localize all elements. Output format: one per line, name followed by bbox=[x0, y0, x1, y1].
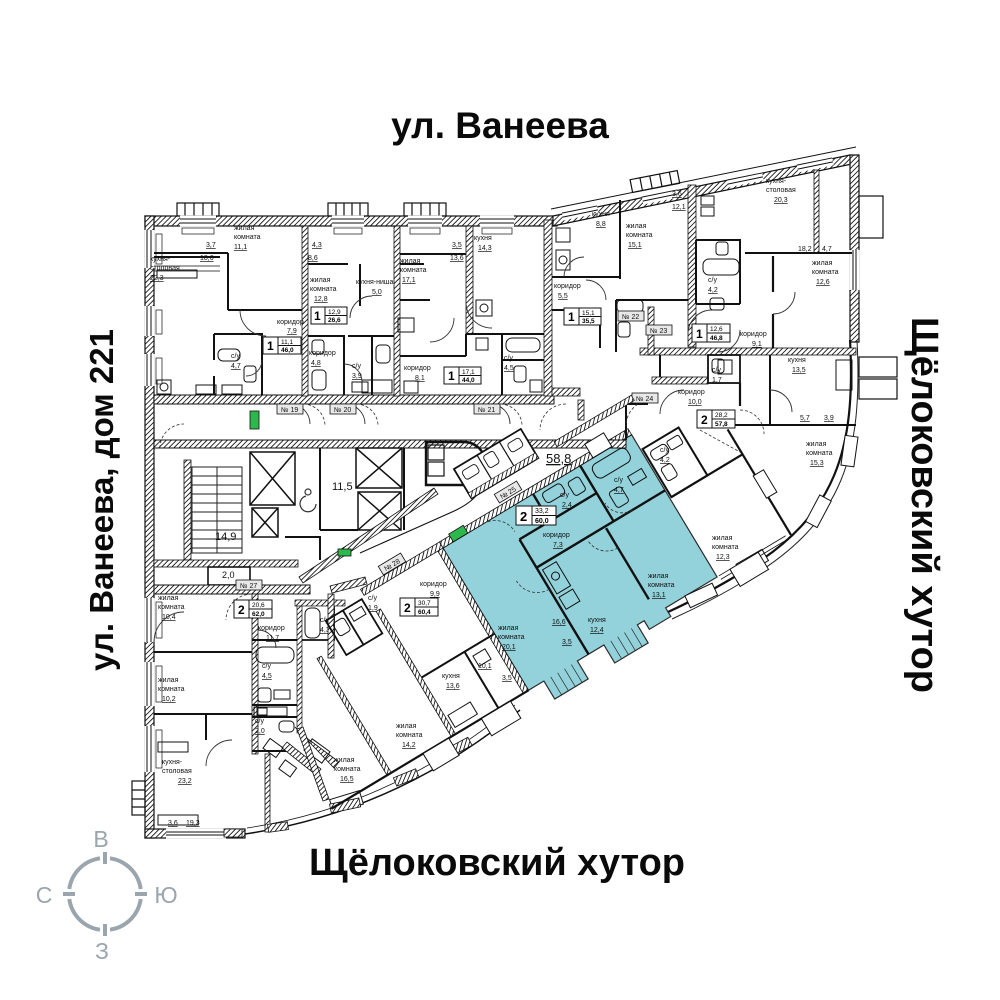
svg-text:с/у: с/у bbox=[352, 363, 361, 370]
svg-text:жилая: жилая bbox=[310, 277, 331, 284]
svg-text:16,5: 16,5 bbox=[340, 776, 354, 783]
svg-text:3,5: 3,5 bbox=[502, 675, 512, 682]
svg-text:12,3: 12,3 bbox=[716, 554, 730, 561]
svg-text:жилая: жилая bbox=[626, 223, 647, 230]
svg-text:с/у: с/у bbox=[614, 477, 623, 484]
svg-text:19,3: 19,3 bbox=[186, 820, 200, 827]
svg-text:17,1: 17,1 bbox=[402, 277, 416, 284]
svg-text:комната: комната bbox=[158, 604, 185, 611]
svg-text:коридор: коридор bbox=[309, 350, 336, 357]
svg-text:13,6: 13,6 bbox=[450, 255, 464, 262]
svg-text:5,5: 5,5 bbox=[558, 293, 568, 300]
svg-text:35,5: 35,5 bbox=[582, 318, 595, 325]
svg-text:№ 20: № 20 bbox=[334, 407, 351, 414]
svg-text:3,7: 3,7 bbox=[206, 242, 216, 249]
svg-text:жилая: жилая bbox=[806, 441, 827, 448]
svg-text:12,1: 12,1 bbox=[672, 204, 686, 211]
svg-text:3,6: 3,6 bbox=[672, 191, 682, 198]
svg-text:ул. Ванеева, дом 221: ул. Ванеева, дом 221 bbox=[83, 329, 120, 671]
svg-text:14,2: 14,2 bbox=[402, 742, 416, 749]
svg-text:Щёлоковский хутор: Щёлоковский хутор bbox=[903, 317, 945, 693]
svg-text:кухня-: кухня- bbox=[162, 759, 183, 766]
svg-text:№ 21: № 21 bbox=[478, 407, 495, 414]
svg-text:2,0: 2,0 bbox=[222, 570, 235, 580]
svg-text:16,6: 16,6 bbox=[552, 619, 566, 626]
svg-text:9,1: 9,1 bbox=[752, 341, 762, 348]
svg-text:5,7: 5,7 bbox=[800, 415, 810, 422]
svg-text:20,3: 20,3 bbox=[774, 197, 788, 204]
svg-text:жилая: жилая bbox=[234, 225, 255, 232]
svg-text:13,5: 13,5 bbox=[792, 367, 806, 374]
svg-text:3,9: 3,9 bbox=[824, 415, 834, 422]
svg-text:12,9: 12,9 bbox=[328, 309, 341, 316]
svg-text:жилая: жилая bbox=[648, 573, 669, 580]
svg-text:кухня-: кухня- bbox=[150, 256, 171, 263]
svg-text:жилая: жилая bbox=[158, 677, 179, 684]
svg-text:с/у: с/у bbox=[368, 595, 377, 602]
svg-text:13,6: 13,6 bbox=[446, 683, 460, 690]
svg-text:1: 1 bbox=[267, 339, 274, 353]
svg-text:4,5: 4,5 bbox=[262, 673, 272, 680]
svg-text:3,5: 3,5 bbox=[562, 639, 572, 646]
svg-text:с/у: с/у bbox=[255, 718, 264, 725]
svg-text:кухня: кухня bbox=[474, 235, 492, 242]
svg-text:кухня: кухня bbox=[592, 211, 610, 218]
svg-text:1: 1 bbox=[696, 327, 703, 341]
svg-text:3,6: 3,6 bbox=[168, 820, 178, 827]
svg-text:с/у: с/у bbox=[712, 367, 721, 374]
svg-text:комната: комната bbox=[812, 269, 839, 276]
svg-text:с/у: с/у bbox=[708, 277, 717, 284]
svg-text:7,9: 7,9 bbox=[287, 328, 297, 335]
svg-text:57,8: 57,8 bbox=[715, 421, 728, 428]
svg-text:комната: комната bbox=[712, 544, 739, 551]
svg-text:58,8: 58,8 bbox=[546, 451, 571, 466]
svg-text:комната: комната bbox=[400, 267, 427, 274]
svg-text:4,2: 4,2 bbox=[708, 287, 718, 294]
svg-text:3,9: 3,9 bbox=[352, 373, 362, 380]
svg-text:жилая: жилая bbox=[158, 595, 179, 602]
svg-text:коридор: коридор bbox=[678, 389, 705, 396]
svg-text:30,7: 30,7 bbox=[418, 600, 431, 607]
svg-text:26,6: 26,6 bbox=[328, 317, 341, 324]
svg-text:комната: комната bbox=[234, 234, 261, 241]
svg-text:кухня-: кухня- bbox=[766, 178, 787, 185]
svg-text:12,4: 12,4 bbox=[590, 627, 604, 634]
svg-text:9,9: 9,9 bbox=[430, 591, 440, 598]
svg-text:ул. Ванеева: ул. Ванеева bbox=[391, 105, 609, 146]
svg-text:8,8: 8,8 bbox=[596, 221, 606, 228]
svg-text:2: 2 bbox=[701, 413, 708, 427]
svg-text:столовая: столовая bbox=[766, 187, 796, 194]
svg-text:2: 2 bbox=[520, 509, 527, 524]
svg-text:4,7: 4,7 bbox=[822, 246, 832, 253]
svg-text:с/у: с/у bbox=[660, 447, 669, 454]
svg-text:1,7: 1,7 bbox=[712, 377, 722, 384]
svg-text:12,6: 12,6 bbox=[816, 279, 830, 286]
svg-text:жилая: жилая bbox=[400, 258, 421, 265]
svg-text:20,6: 20,6 bbox=[252, 602, 265, 609]
svg-text:З: З bbox=[95, 938, 109, 964]
svg-text:13,1: 13,1 bbox=[652, 592, 666, 599]
svg-text:5,0: 5,0 bbox=[372, 289, 382, 296]
svg-text:4,3: 4,3 bbox=[312, 242, 322, 249]
svg-text:№ 22: № 22 bbox=[622, 314, 639, 321]
svg-text:жилая: жилая bbox=[498, 625, 519, 632]
svg-text:комната: комната bbox=[806, 450, 833, 457]
svg-text:8,6: 8,6 bbox=[308, 255, 318, 262]
svg-text:комната: комната bbox=[648, 582, 675, 589]
svg-text:коридор: коридор bbox=[543, 532, 570, 539]
svg-text:комната: комната bbox=[626, 232, 653, 239]
svg-text:кухня-ниша: кухня-ниша bbox=[356, 279, 394, 286]
svg-text:62,0: 62,0 bbox=[252, 611, 265, 618]
svg-text:4,7: 4,7 bbox=[614, 487, 624, 494]
svg-text:15,3: 15,3 bbox=[810, 460, 824, 467]
svg-text:Ю: Ю bbox=[154, 882, 177, 908]
svg-text:11,1: 11,1 bbox=[234, 244, 247, 251]
svg-text:коридор: коридор bbox=[554, 283, 581, 290]
svg-text:28,2: 28,2 bbox=[715, 412, 728, 419]
svg-text:2,4: 2,4 bbox=[562, 502, 572, 509]
svg-text:жилая: жилая bbox=[396, 723, 417, 730]
svg-text:кухня: кухня bbox=[588, 617, 606, 624]
svg-text:коридор: коридор bbox=[258, 625, 285, 632]
svg-text:столовая: столовая bbox=[150, 265, 180, 272]
svg-text:комната: комната bbox=[158, 686, 185, 693]
svg-text:С: С bbox=[36, 882, 53, 908]
svg-text:4,8: 4,8 bbox=[311, 360, 321, 367]
svg-text:11,5: 11,5 bbox=[332, 481, 353, 493]
svg-text:18,6: 18,6 bbox=[200, 255, 214, 262]
svg-text:№ 24: № 24 bbox=[636, 396, 653, 403]
svg-text:коридор: коридор bbox=[404, 365, 431, 372]
svg-text:4,7: 4,7 bbox=[231, 363, 241, 370]
svg-text:№ 27: № 27 bbox=[240, 583, 257, 590]
svg-text:44,0: 44,0 bbox=[462, 377, 475, 384]
svg-text:жилая: жилая bbox=[812, 260, 833, 267]
svg-text:12,6: 12,6 bbox=[710, 326, 723, 333]
svg-text:14,9: 14,9 bbox=[215, 531, 236, 543]
svg-text:с/у: с/у bbox=[560, 492, 569, 499]
svg-text:11,7: 11,7 bbox=[266, 635, 279, 642]
svg-text:20,1: 20,1 bbox=[502, 644, 516, 651]
svg-text:7,3: 7,3 bbox=[553, 542, 563, 549]
svg-text:46,0: 46,0 bbox=[281, 347, 294, 354]
svg-text:4,5: 4,5 bbox=[504, 365, 514, 372]
svg-text:коридор: коридор bbox=[420, 581, 447, 588]
svg-text:жилая: жилая bbox=[334, 757, 355, 764]
svg-text:33,2: 33,2 bbox=[535, 508, 549, 515]
svg-text:комната: комната bbox=[334, 766, 361, 773]
svg-text:1: 1 bbox=[568, 310, 575, 324]
svg-text:10,2: 10,2 bbox=[162, 696, 176, 703]
svg-text:Щёлоковский хутор: Щёлоковский хутор bbox=[309, 842, 685, 884]
svg-text:15,1: 15,1 bbox=[582, 310, 595, 317]
svg-text:кухня: кухня bbox=[442, 673, 460, 680]
svg-text:с/у: с/у bbox=[262, 663, 271, 670]
svg-text:1: 1 bbox=[314, 309, 321, 323]
svg-text:60,0: 60,0 bbox=[535, 518, 549, 525]
svg-text:2: 2 bbox=[404, 601, 411, 615]
svg-text:46,8: 46,8 bbox=[710, 335, 723, 342]
svg-text:коридор: коридор bbox=[740, 331, 767, 338]
svg-text:В: В bbox=[93, 826, 108, 852]
svg-text:2,0: 2,0 bbox=[255, 728, 265, 735]
svg-text:комната: комната bbox=[396, 732, 423, 739]
svg-text:8,1: 8,1 bbox=[415, 375, 425, 382]
svg-text:10,1: 10,1 bbox=[478, 663, 492, 670]
svg-text:коридор: коридор bbox=[277, 319, 304, 326]
svg-text:с/у: с/у bbox=[231, 353, 240, 360]
svg-text:15,1: 15,1 bbox=[628, 242, 642, 249]
svg-text:комната: комната bbox=[498, 634, 525, 641]
svg-text:10,0: 10,0 bbox=[688, 399, 702, 406]
svg-text:с/у: с/у bbox=[504, 355, 513, 362]
svg-text:комната: комната bbox=[310, 286, 337, 293]
svg-text:2: 2 bbox=[238, 603, 245, 617]
svg-text:12,8: 12,8 bbox=[314, 296, 328, 303]
svg-text:17,1: 17,1 bbox=[462, 369, 475, 376]
svg-text:1: 1 bbox=[448, 369, 455, 383]
svg-text:22,3: 22,3 bbox=[150, 275, 164, 282]
svg-text:3,5: 3,5 bbox=[452, 242, 462, 249]
svg-text:60,4: 60,4 bbox=[418, 609, 431, 616]
svg-text:14,3: 14,3 bbox=[478, 245, 492, 252]
svg-text:4,2: 4,2 bbox=[660, 457, 670, 464]
svg-text:№ 23: № 23 bbox=[650, 328, 667, 335]
svg-text:жилая: жилая bbox=[712, 535, 733, 542]
svg-text:11,1: 11,1 bbox=[281, 339, 294, 346]
svg-text:23,2: 23,2 bbox=[178, 778, 192, 785]
svg-text:18,2: 18,2 bbox=[798, 246, 812, 253]
svg-text:№ 19: № 19 bbox=[281, 407, 298, 414]
svg-text:кухня: кухня bbox=[788, 357, 806, 364]
svg-text:столовая: столовая bbox=[162, 768, 192, 775]
svg-text:10,4: 10,4 bbox=[162, 614, 176, 621]
